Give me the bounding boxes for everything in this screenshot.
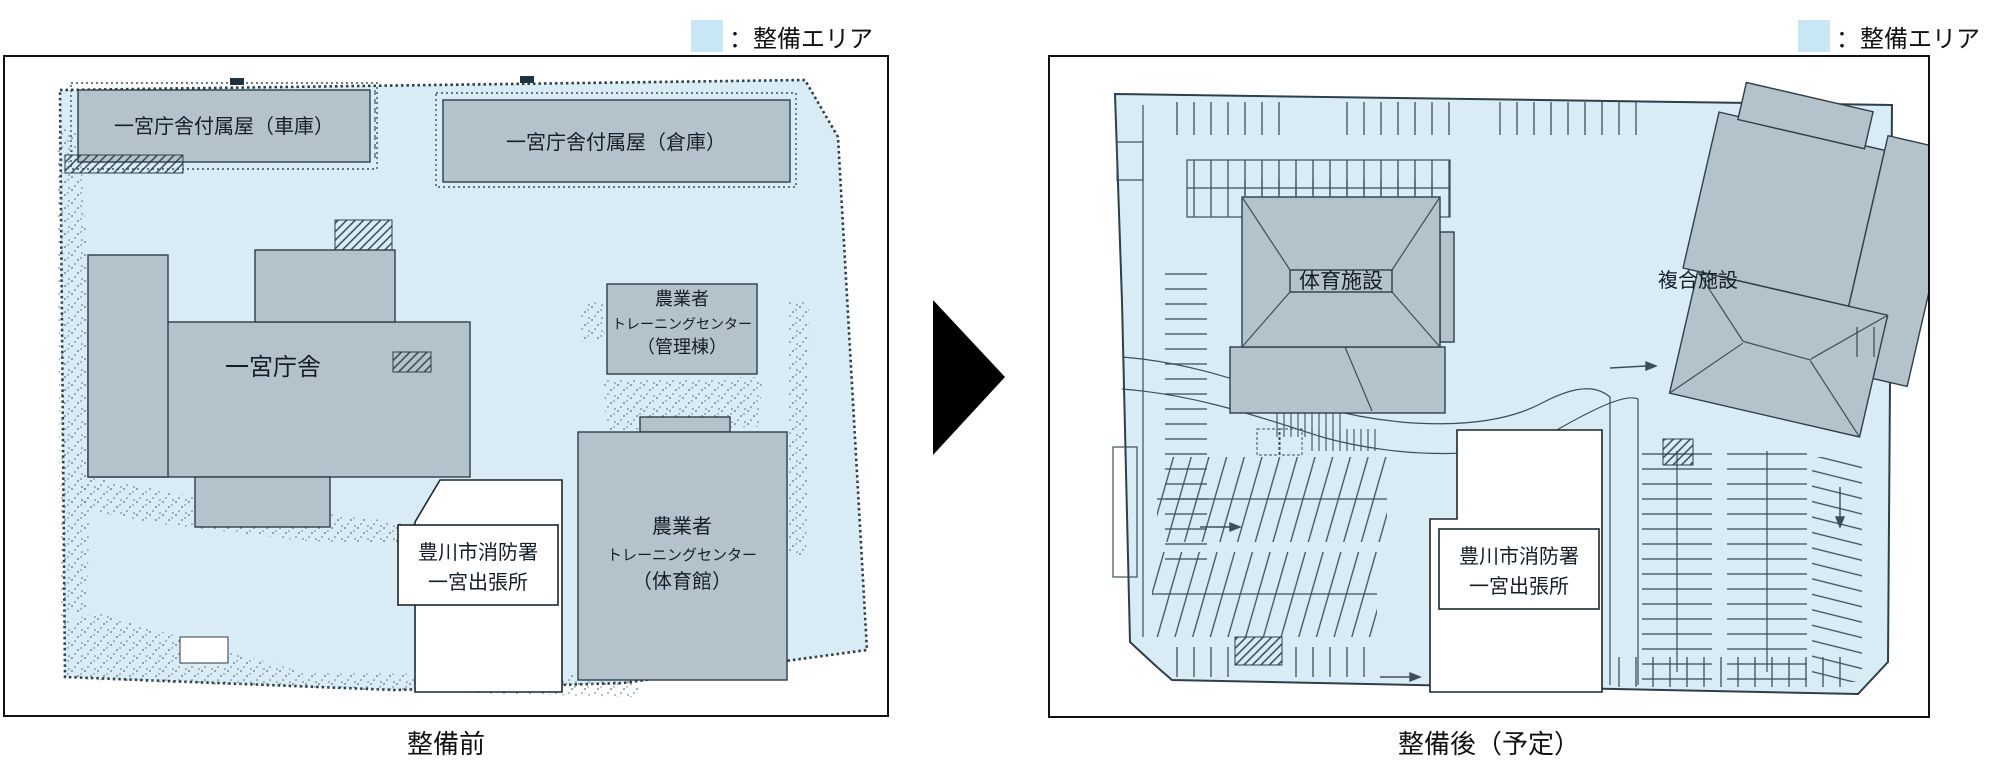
- parking-row: [1852, 327, 1880, 357]
- label-fire-station-2: 一宮出張所: [1469, 575, 1569, 598]
- stipple-patch: [580, 302, 605, 342]
- before-panel: 一宮庁舎付属屋（車庫） 一宮庁舎付属屋（倉庫） 一宮庁舎 農業者 トレーニングセ…: [3, 55, 889, 717]
- label-training-admin-1: 農業者: [655, 289, 709, 309]
- building-main-west-wing: [88, 255, 168, 477]
- small-structure: [180, 637, 228, 663]
- after-panel: 体育施設 複合施設 豊川市消防署 一宮出張所: [1048, 55, 1930, 718]
- after-site-plan: 体育施設 複合施設 豊川市消防署 一宮出張所: [1050, 57, 1928, 716]
- legend-left: ：整備エリア: [691, 16, 873, 56]
- label-training-admin-2: トレーニングセンター: [612, 316, 752, 332]
- transition-arrow-icon: [933, 300, 1005, 455]
- stipple-right-col: [787, 299, 809, 557]
- gate-mark: [230, 78, 244, 85]
- before-site-plan: 一宮庁舎付属屋（車庫） 一宮庁舎付属屋（倉庫） 一宮庁舎 農業者 トレーニングセ…: [5, 57, 887, 715]
- label-training-gym-1: 農業者: [652, 515, 712, 538]
- building-sports-strip: [1440, 232, 1454, 342]
- building-gym-tab: [640, 417, 730, 432]
- label-sports: 体育施設: [1299, 270, 1383, 293]
- label-garage: 一宮庁舎付属屋（車庫）: [114, 115, 334, 138]
- legend-label: ：整備エリア: [1836, 19, 1980, 54]
- hatched-block: [1235, 637, 1282, 665]
- figure-canvas: ：整備エリア ：整備エリア: [0, 0, 2000, 767]
- label-fire-station-1: 豊川市消防署: [1459, 545, 1579, 568]
- label-fire-station-2: 一宮出張所: [428, 571, 528, 594]
- building-main-south-ext: [195, 477, 330, 527]
- legend-label: ：整備エリア: [729, 19, 873, 54]
- legend-right: ：整備エリア: [1798, 16, 1980, 56]
- gate-mark: [520, 76, 534, 83]
- parking-row: [1167, 102, 1290, 135]
- parking-row: [1242, 179, 1440, 195]
- parking-row: [1492, 102, 1642, 135]
- caption-after: 整備後（予定）: [1048, 724, 1930, 761]
- label-training-gym-3: （体育館）: [632, 570, 732, 593]
- building-main-north-wing: [255, 250, 395, 322]
- label-training-admin-3: （管理棟）: [637, 337, 727, 357]
- parking-row: [1605, 657, 1855, 687]
- label-main-hall: 一宮庁舎: [225, 354, 321, 381]
- parking-column-slanted: [1812, 457, 1862, 682]
- legend-swatch: [1798, 20, 1830, 52]
- label-complex: 複合施設: [1658, 269, 1738, 292]
- parking-row: [1335, 102, 1450, 135]
- parking-row: [1162, 647, 1232, 677]
- label-training-gym-2: トレーニングセンター: [607, 547, 757, 564]
- hatched-block: [1663, 439, 1693, 465]
- caption-before: 整備前: [3, 724, 889, 761]
- hatched-block: [393, 352, 431, 372]
- label-fire-station-1: 豊川市消防署: [418, 541, 538, 564]
- hatched-strip: [65, 155, 183, 173]
- legend-swatch: [691, 20, 723, 52]
- parking-row-dense: [1310, 429, 1378, 451]
- hatched-block: [335, 220, 392, 250]
- label-warehouse: 一宮庁舎付属屋（倉庫）: [506, 131, 726, 154]
- building-sports-ext: [1230, 347, 1445, 413]
- parking-row: [1288, 647, 1373, 677]
